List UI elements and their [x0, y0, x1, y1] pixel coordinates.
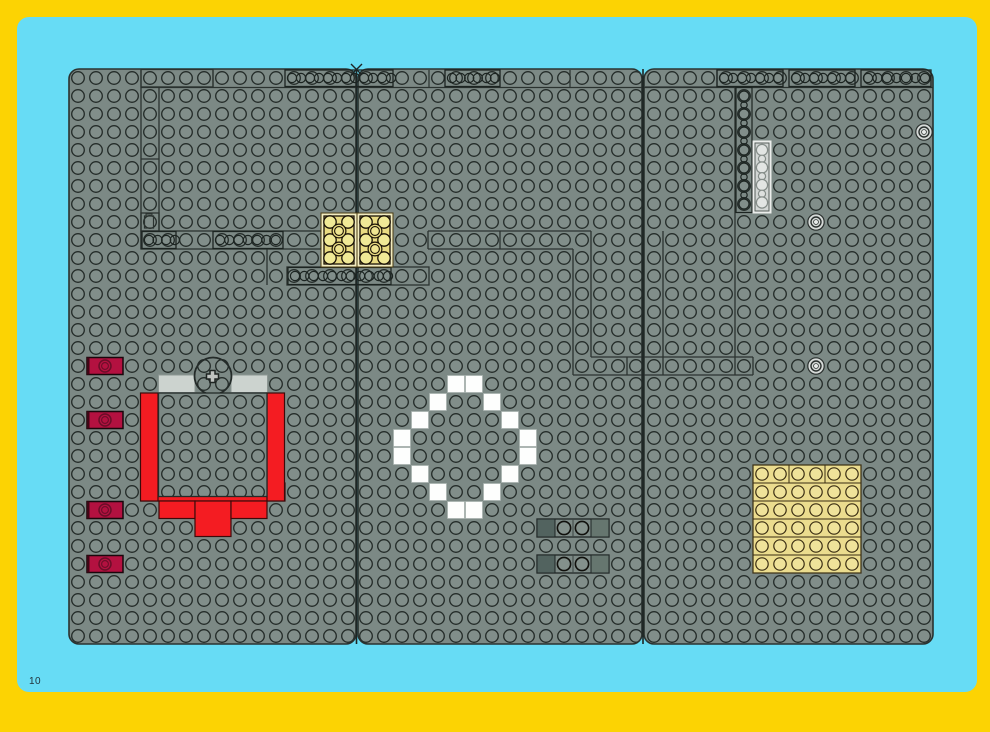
svg-text:10: 10: [29, 676, 41, 687]
